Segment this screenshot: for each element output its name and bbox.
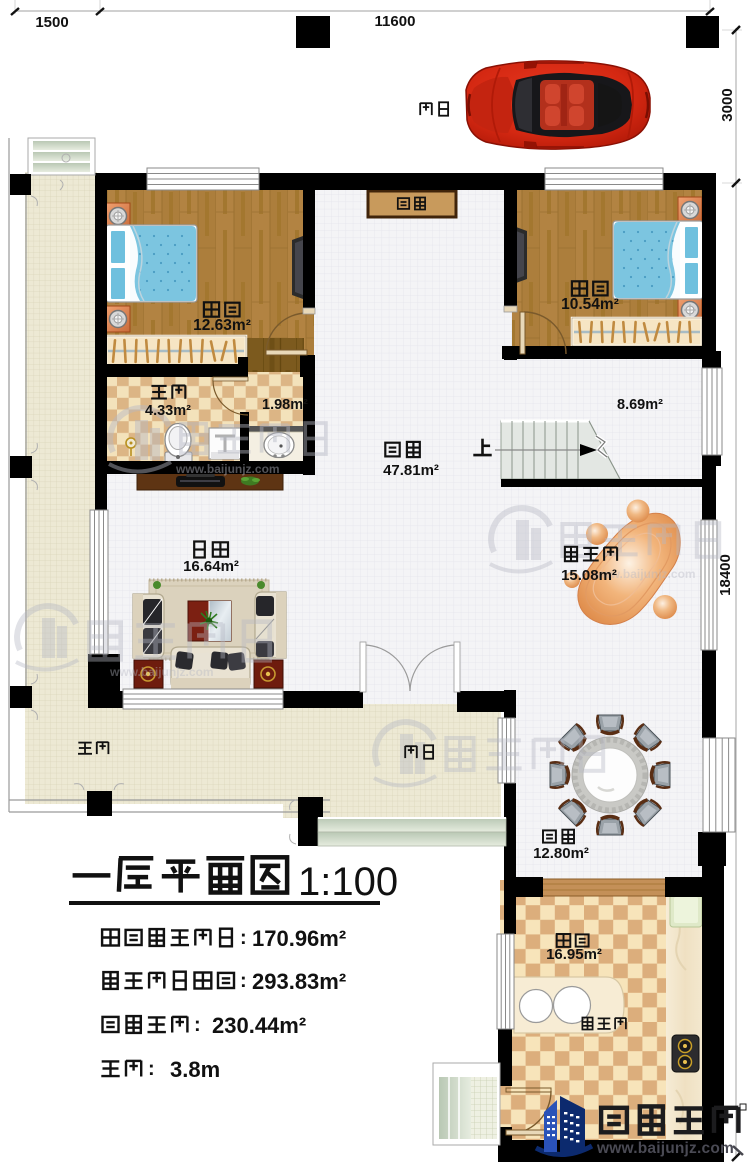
svg-text:3000: 3000 [719, 88, 736, 121]
svg-text:4.33m²: 4.33m² [145, 403, 191, 419]
svg-text:1500: 1500 [35, 14, 68, 31]
svg-text:15.08m²: 15.08m² [561, 567, 617, 584]
svg-text:170.96m²: 170.96m² [252, 926, 346, 951]
svg-text:11600: 11600 [375, 13, 416, 30]
svg-text:www.baijunjz.com: www.baijunjz.com [109, 665, 214, 679]
svg-text:www.baijunjz.com: www.baijunjz.com [596, 1140, 734, 1157]
svg-text::: : [194, 1014, 201, 1036]
svg-text::: : [148, 1058, 155, 1080]
svg-text::: : [240, 927, 247, 949]
svg-text:12.63m²: 12.63m² [193, 317, 251, 334]
svg-text:10.54m²: 10.54m² [561, 296, 619, 313]
svg-text:230.44m²: 230.44m² [212, 1013, 306, 1038]
svg-text:47.81m²: 47.81m² [383, 462, 439, 479]
svg-text:12.80m²: 12.80m² [533, 845, 589, 862]
svg-text:293.83m²: 293.83m² [252, 969, 346, 994]
svg-text:16.64m²: 16.64m² [183, 558, 239, 575]
svg-text:18400: 18400 [717, 554, 734, 596]
svg-text:16.95m²: 16.95m² [546, 946, 602, 963]
svg-text:1:100: 1:100 [298, 860, 398, 904]
svg-text:8.69m²: 8.69m² [617, 397, 663, 413]
svg-text::: : [240, 970, 247, 992]
svg-text:1.98m²: 1.98m² [262, 397, 308, 413]
svg-text:www.baijunjz.com: www.baijunjz.com [175, 462, 280, 476]
svg-text:3.8m: 3.8m [170, 1057, 220, 1082]
